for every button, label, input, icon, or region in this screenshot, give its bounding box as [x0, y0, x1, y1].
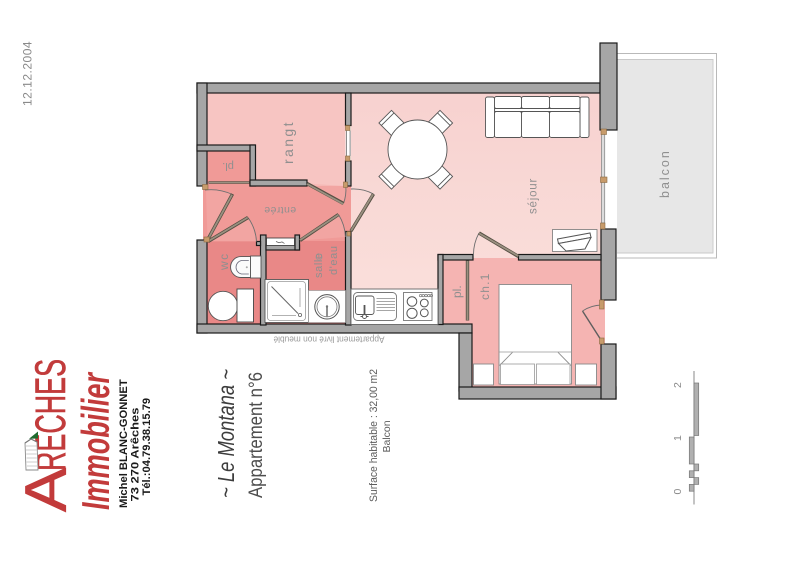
- svg-text:pl.: pl.: [222, 160, 234, 172]
- svg-text:entrée: entrée: [264, 204, 296, 216]
- svg-text:d'eau: d'eau: [328, 245, 340, 275]
- svg-text:Surface habitable : 32,00 m2: Surface habitable : 32,00 m2: [368, 369, 380, 502]
- svg-text:Tél.:04.79.38.15.79: Tél.:04.79.38.15.79: [141, 398, 153, 496]
- svg-text:balcon: balcon: [658, 149, 672, 198]
- svg-text:A: A: [14, 468, 79, 512]
- svg-text:rangt: rangt: [280, 120, 296, 164]
- svg-text:~ Le Montana ~: ~ Le Montana ~: [213, 369, 239, 498]
- svg-text:0: 0: [672, 489, 684, 495]
- svg-text:pl.: pl.: [450, 285, 464, 298]
- svg-text:séjour: séjour: [528, 178, 540, 214]
- svg-text:Immobilier: Immobilier: [75, 372, 118, 510]
- svg-text:73 270 Arêches: 73 270 Arêches: [130, 408, 142, 502]
- svg-text:Appartement livré non meublé: Appartement livré non meublé: [274, 335, 385, 345]
- svg-text:Michel BLANC-GONNET: Michel BLANC-GONNET: [118, 379, 130, 508]
- svg-text:wc: wc: [217, 252, 231, 271]
- svg-text:12.12.2004: 12.12.2004: [21, 41, 35, 106]
- svg-text:2: 2: [672, 382, 684, 388]
- svg-text:ch.1: ch.1: [478, 273, 492, 300]
- svg-text:Appartement n°6: Appartement n°6: [246, 372, 267, 498]
- svg-text:salle: salle: [313, 252, 325, 278]
- svg-text:1: 1: [672, 435, 684, 441]
- svg-text:Balcon: Balcon: [381, 420, 393, 452]
